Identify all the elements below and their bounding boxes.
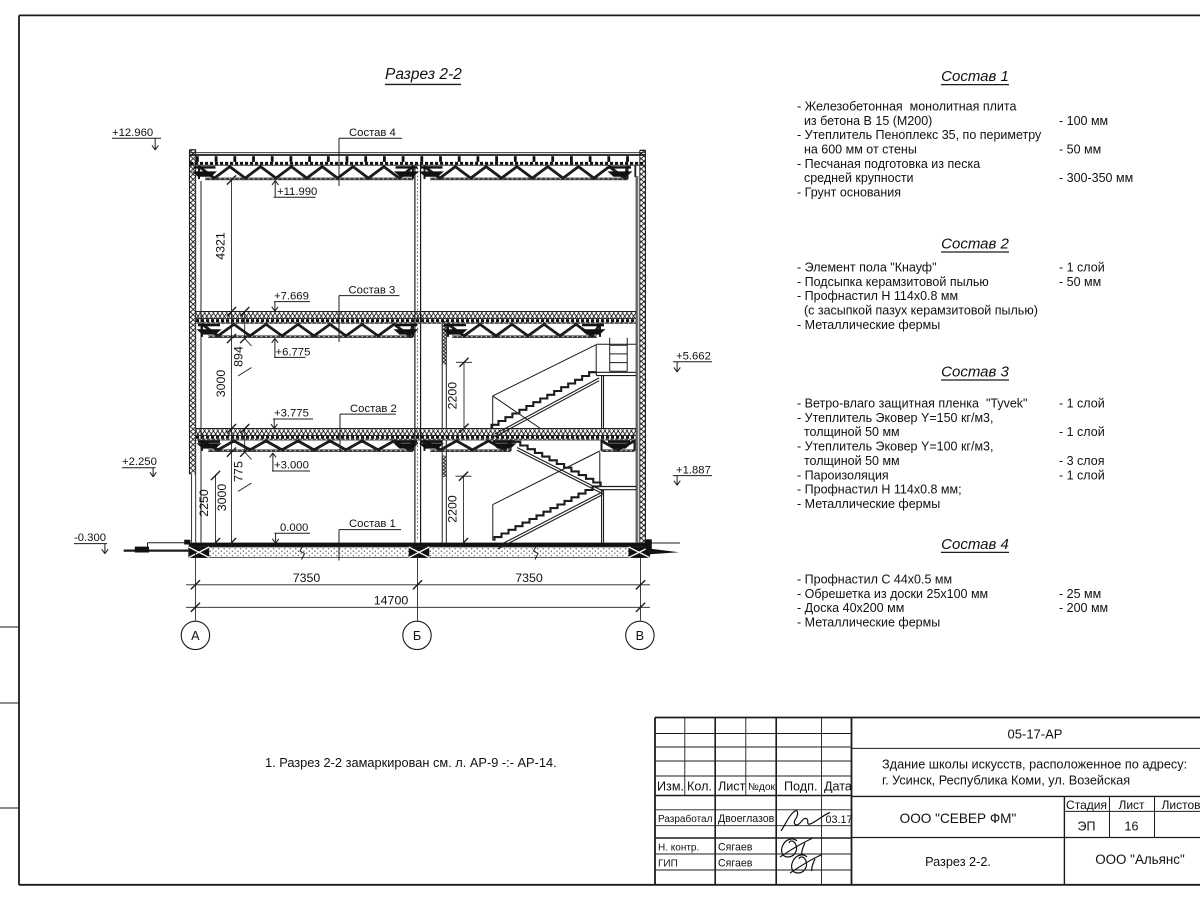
svg-text:+11.990: +11.990 (277, 186, 317, 198)
svg-text:средней крупности: средней крупности (797, 171, 914, 185)
svg-text:Сягаев: Сягаев (718, 842, 753, 854)
svg-text:14700: 14700 (374, 594, 409, 608)
svg-text:Состав 4: Состав 4 (941, 536, 1009, 553)
svg-text:на 600 мм от стены: на 600 мм от стены (797, 143, 917, 157)
svg-text:(с засыпкой пазух керамзитовой: (с засыпкой пазух керамзитовой пылью) (797, 304, 1038, 318)
svg-text:Стадия: Стадия (1066, 798, 1107, 812)
svg-text:- 50 мм: - 50 мм (1059, 275, 1101, 289)
svg-text:+6.775: +6.775 (276, 347, 311, 359)
svg-text:-0.300: -0.300 (74, 532, 106, 544)
svg-text:- Профнастил Н 114х0.8 мм: - Профнастил Н 114х0.8 мм (797, 289, 958, 303)
svg-text:- Металлические фермы: - Металлические фермы (797, 616, 940, 630)
svg-text:Состав 1: Состав 1 (349, 518, 396, 530)
svg-text:г. Усинск, Республика Коми, ул: г. Усинск, Республика Коми, ул. Возейска… (882, 774, 1130, 788)
svg-text:- 3 слоя: - 3 слоя (1059, 454, 1104, 468)
svg-text:- 50 мм: - 50 мм (1059, 143, 1101, 157)
svg-text:- Профнастил Н 114х0.8 мм;: - Профнастил Н 114х0.8 мм; (797, 483, 962, 497)
svg-text:- 1 слой: - 1 слой (1059, 468, 1105, 482)
svg-text:- 1 слой: - 1 слой (1059, 425, 1105, 439)
svg-text:Разрез 2-2: Разрез 2-2 (385, 66, 462, 83)
svg-text:Лист: Лист (1118, 798, 1145, 812)
svg-text:Н. контр.: Н. контр. (658, 842, 699, 853)
svg-text:- 1 слой: - 1 слой (1059, 261, 1105, 275)
svg-text:3000: 3000 (215, 484, 229, 512)
svg-text:- 200 мм: - 200 мм (1059, 601, 1108, 615)
svg-text:- Элемент пола "Кнауф": - Элемент пола "Кнауф" (797, 261, 937, 275)
svg-text:775: 775 (232, 461, 246, 482)
svg-text:Дата: Дата (824, 780, 852, 794)
svg-text:- 300-350 мм: - 300-350 мм (1059, 171, 1133, 185)
svg-text:- Утеплитель Эковер Y=100 кг/м: - Утеплитель Эковер Y=100 кг/м3, (797, 440, 993, 454)
svg-text:толщиной 50 мм: толщиной 50 мм (797, 454, 900, 468)
svg-text:+3.000: +3.000 (274, 460, 309, 472)
svg-text:Состав 4: Состав 4 (349, 127, 396, 139)
svg-text:ГИП: ГИП (658, 858, 678, 869)
svg-text:Изм.: Изм. (657, 780, 684, 794)
svg-text:2200: 2200 (445, 495, 459, 523)
svg-text:- Грунт основания: - Грунт основания (797, 186, 901, 200)
svg-text:- Доска 40х200 мм: - Доска 40х200 мм (797, 601, 904, 615)
svg-text:Кол.: Кол. (687, 780, 712, 794)
svg-text:Сягаев: Сягаев (718, 858, 753, 870)
svg-text:Состав 1: Состав 1 (941, 68, 1009, 85)
svg-text:- Обрешетка из доски 25х100 мм: - Обрешетка из доски 25х100 мм (797, 587, 988, 601)
svg-text:Здание школы искусств, располо: Здание школы искусств, расположенное по … (882, 757, 1187, 771)
svg-text:- Утеплитель Пеноплекс 35, по: - Утеплитель Пеноплекс 35, по периметру (797, 128, 1042, 142)
svg-text:Состав 3: Состав 3 (941, 364, 1009, 381)
svg-text:Разработал: Разработал (658, 813, 713, 825)
svg-text:А: А (191, 629, 200, 643)
svg-text:ООО "Альянс": ООО "Альянс" (1095, 852, 1185, 867)
svg-text:Разрез 2-2.: Разрез 2-2. (925, 855, 991, 869)
svg-text:Подп.: Подп. (784, 780, 817, 794)
svg-text:1. Разрез 2-2 замаркирован см.: 1. Разрез 2-2 замаркирован см. л. АР-9 -… (265, 755, 557, 770)
svg-text:Двоеглазов: Двоеглазов (718, 813, 775, 825)
svg-text:894: 894 (232, 346, 246, 367)
svg-text:толщиной 50 мм: толщиной 50 мм (797, 425, 900, 439)
svg-text:из бетона В 15 (М200): из бетона В 15 (М200) (797, 114, 932, 128)
svg-text:Состав 2: Состав 2 (941, 236, 1009, 253)
svg-text:Состав 3: Состав 3 (349, 284, 396, 296)
svg-text:ЭП: ЭП (1078, 820, 1096, 834)
svg-text:ООО "СЕВЕР ФМ": ООО "СЕВЕР ФМ" (900, 811, 1017, 826)
svg-text:- Металлические фермы: - Металлические фермы (797, 318, 940, 332)
svg-text:- Пароизоляция: - Пароизоляция (797, 468, 889, 482)
svg-text:- Песчаная подготовка из песка: - Песчаная подготовка из песка (797, 157, 980, 171)
svg-text:- Ветро-влаго защитная пленка: - Ветро-влаго защитная пленка "Tyvek" (797, 397, 1027, 411)
svg-text:- 100 мм: - 100 мм (1059, 114, 1108, 128)
svg-text:- 25 мм: - 25 мм (1059, 587, 1101, 601)
svg-text:4321: 4321 (214, 232, 228, 260)
svg-text:- Железобетонная монолитная п: - Железобетонная монолитная плита (797, 100, 1016, 114)
svg-text:+1.887: +1.887 (676, 465, 711, 477)
svg-text:№док.: №док. (748, 782, 778, 793)
svg-text:- Утеплитель Эковер Y=150 кг/м: - Утеплитель Эковер Y=150 кг/м3, (797, 411, 993, 425)
svg-text:05-17-АР: 05-17-АР (1008, 727, 1063, 742)
svg-text:2250: 2250 (197, 489, 211, 517)
svg-text:2200: 2200 (446, 382, 460, 410)
svg-text:Листов: Листов (1162, 798, 1200, 812)
svg-text:3000: 3000 (214, 370, 228, 398)
svg-text:Б: Б (413, 629, 421, 643)
svg-text:В: В (636, 629, 644, 643)
svg-text:0.000: 0.000 (280, 522, 308, 534)
svg-text:+2.250: +2.250 (122, 456, 157, 468)
svg-text:+3.775: +3.775 (274, 408, 309, 420)
svg-text:- Металлические фермы: - Металлические фермы (797, 497, 940, 511)
svg-text:+7.669: +7.669 (274, 291, 309, 303)
svg-text:+12.960: +12.960 (112, 127, 153, 139)
svg-text:7350: 7350 (515, 571, 543, 585)
svg-text:- 1 слой: - 1 слой (1059, 397, 1105, 411)
svg-text:Состав 2: Состав 2 (350, 403, 397, 415)
svg-text:Лист: Лист (718, 780, 746, 794)
svg-text:03.17: 03.17 (826, 814, 853, 826)
svg-text:+5.662: +5.662 (676, 351, 711, 363)
svg-text:- Подсыпка керамзитовой пылью: - Подсыпка керамзитовой пылью (797, 275, 989, 289)
svg-text:16: 16 (1125, 820, 1139, 834)
svg-text:- Профнастил С 44х0.5 мм: - Профнастил С 44х0.5 мм (797, 573, 952, 587)
svg-text:7350: 7350 (293, 571, 321, 585)
